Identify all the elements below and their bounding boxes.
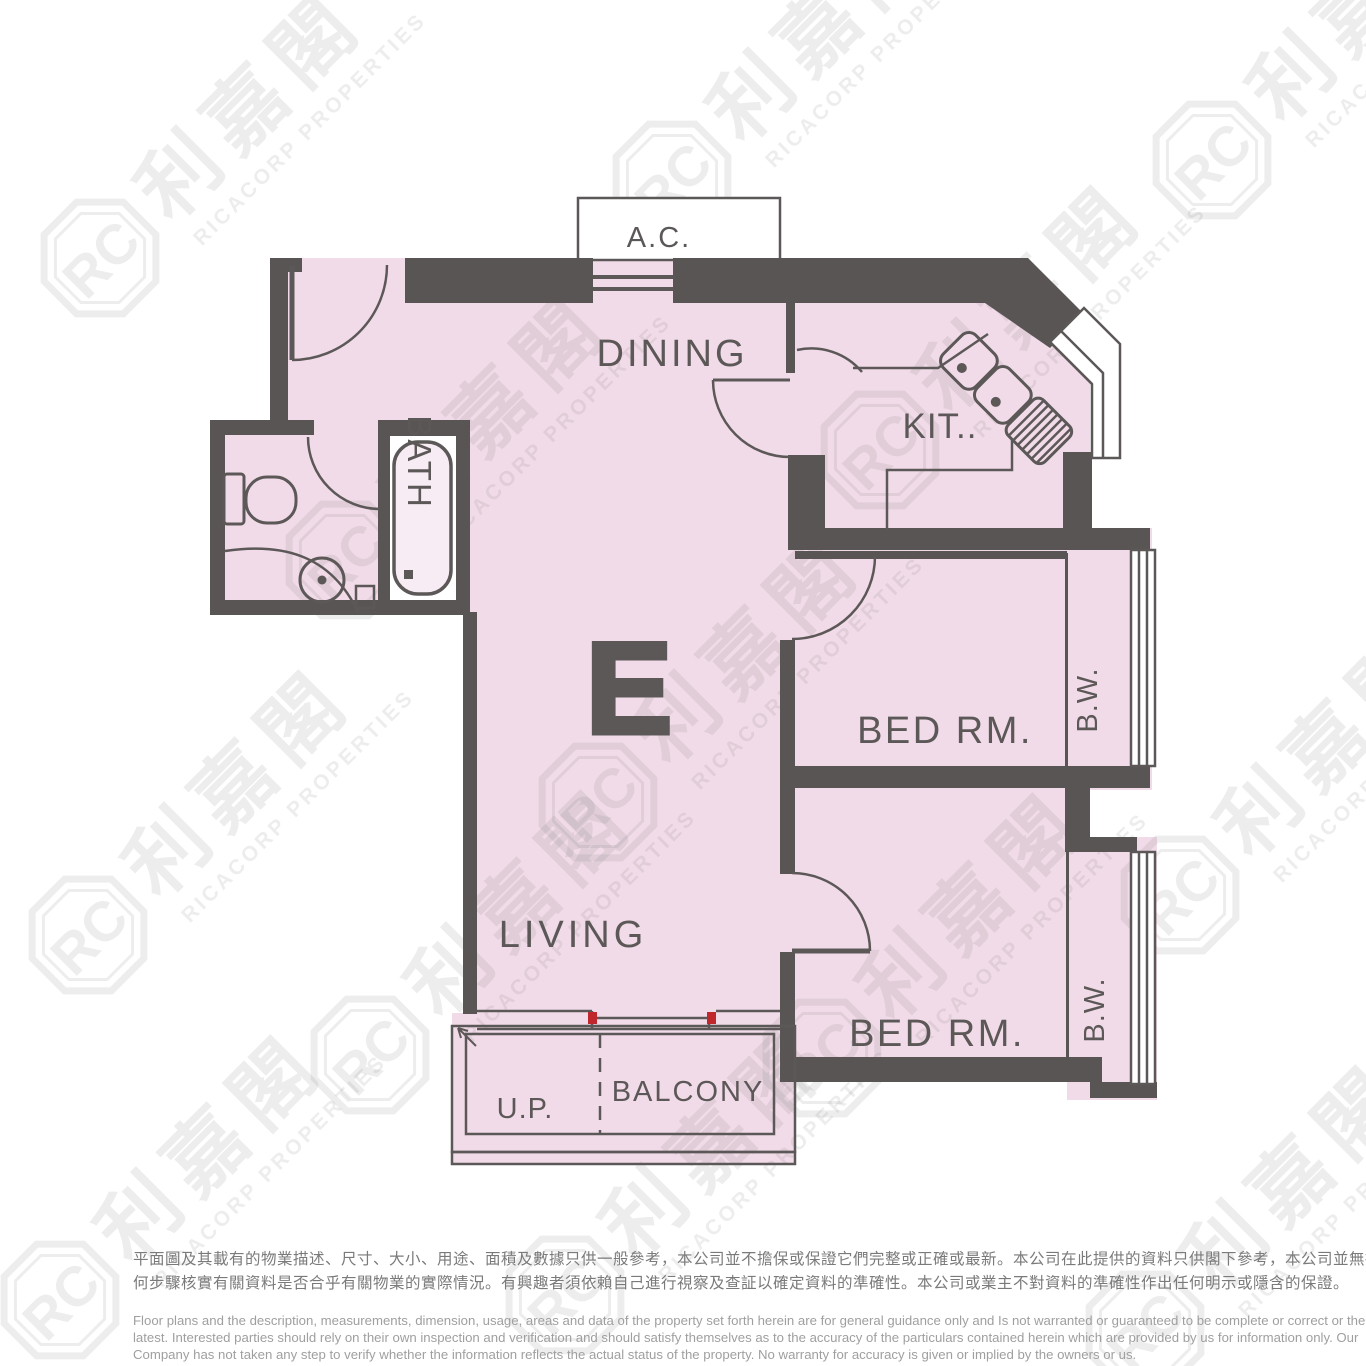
wall-bw2-top-stub bbox=[1065, 837, 1137, 852]
unit-letter: E bbox=[586, 615, 673, 761]
door-marker-red bbox=[707, 1012, 716, 1024]
label-bay-window-1: B.W. bbox=[1072, 667, 1104, 732]
label-utility-platform: U.P. bbox=[497, 1093, 554, 1125]
floor-plan-page: RC 利嘉閣 RICACORP PROPERTIES bbox=[0, 0, 1366, 1366]
bay-window-2-glass bbox=[1131, 852, 1155, 1084]
label-living: LIVING bbox=[499, 914, 648, 956]
toilet-icon bbox=[224, 474, 296, 524]
wall-bw1-divider bbox=[1065, 553, 1068, 766]
bay-window-1-glass bbox=[1131, 550, 1155, 766]
door-marker-red bbox=[588, 1012, 597, 1024]
wall-bed2-bottom bbox=[780, 1057, 1102, 1082]
wall bbox=[270, 272, 288, 422]
label-bed-room-2: BED RM. bbox=[849, 1013, 1025, 1055]
disclaimer-block: 平面圖及其載有的物業描述、尺寸、大小、用途、面積及數據只供一般參考，本公司並不擔… bbox=[133, 1248, 1245, 1363]
label-ac: A.C. bbox=[627, 222, 691, 254]
label-dining: DINING bbox=[597, 333, 748, 375]
disclaimer-en-line-2: latest. Interested parties should rely o… bbox=[133, 1329, 1245, 1346]
wall-tub-right bbox=[456, 420, 470, 612]
wall bbox=[1063, 452, 1092, 530]
wall-hall bbox=[788, 455, 825, 530]
wall-bedroom-left-a bbox=[780, 640, 795, 874]
label-balcony: BALCONY bbox=[612, 1076, 765, 1108]
wall-bath-bottom bbox=[210, 600, 468, 615]
disclaimer-en-line-1: Floor plans and the description, measure… bbox=[133, 1312, 1245, 1329]
floor-plan-image: RC 利嘉閣 RICACORP PROPERTIES bbox=[0, 0, 1366, 1366]
wall-stub bbox=[786, 303, 795, 373]
label-kitchen: KIT.. bbox=[902, 407, 977, 446]
wall-bath-top bbox=[210, 420, 314, 435]
wall-kitchen-bottom bbox=[788, 528, 1150, 550]
label-bay-window-2: B.W. bbox=[1079, 977, 1111, 1042]
disclaimer-zh-line-1: 平面圖及其載有的物業描述、尺寸、大小、用途、面積及數據只供一般參考，本公司並不擔… bbox=[133, 1248, 1245, 1272]
wall bbox=[270, 258, 302, 272]
label-bath: BATH bbox=[401, 415, 438, 509]
bathtub-drain-dot bbox=[404, 570, 413, 579]
disclaimer-en-line-3: Company has not taken any step to verify… bbox=[133, 1346, 1245, 1363]
wall-tub-left bbox=[378, 420, 390, 612]
disclaimer-zh-line-2: 何步驟核實有關資料是否合乎有關物業的實際情況。有興趣者須依賴自己進行視察及查証以… bbox=[133, 1272, 1245, 1296]
wall-between-bedrooms bbox=[780, 766, 1150, 788]
wall-living-left bbox=[463, 612, 477, 1014]
label-bed-room-1: BED RM. bbox=[857, 710, 1033, 752]
wall-bed1-top bbox=[795, 551, 1067, 559]
wall bbox=[405, 258, 593, 303]
wall bbox=[673, 258, 985, 303]
wall-bw2-divider bbox=[1066, 852, 1069, 1057]
wall-bedroom-left-b bbox=[780, 952, 795, 1057]
